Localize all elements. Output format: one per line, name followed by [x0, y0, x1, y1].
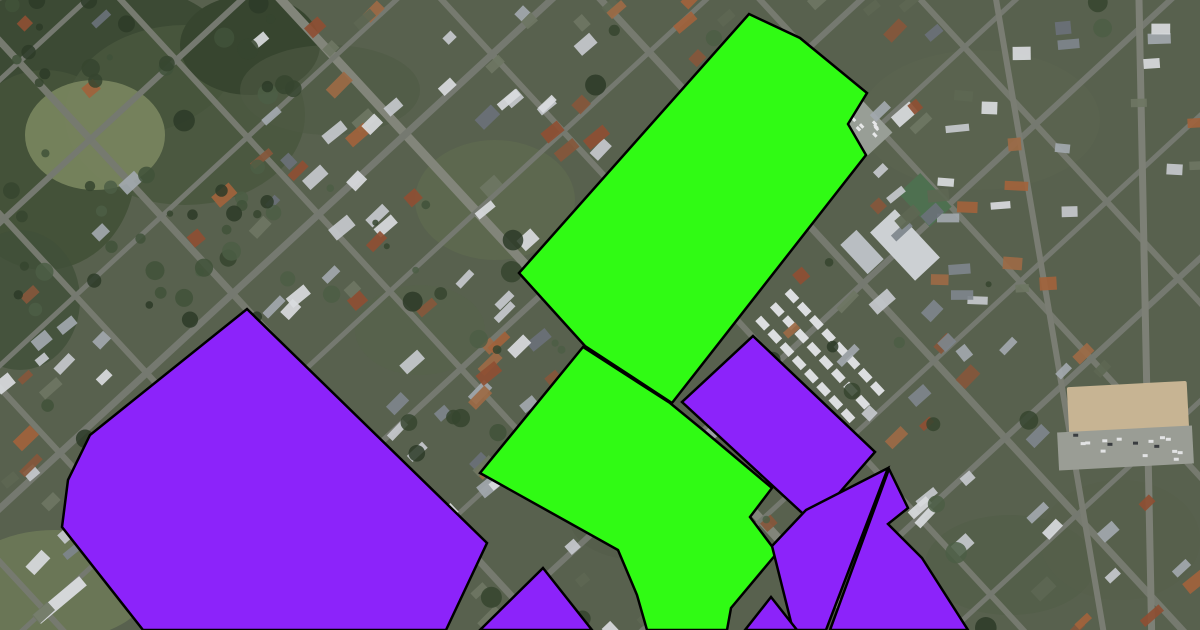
tree [503, 230, 524, 251]
house-roof [927, 188, 949, 202]
car [1102, 439, 1107, 442]
car [1085, 441, 1090, 444]
tree [14, 290, 23, 299]
car [1148, 440, 1153, 443]
house-roof [1003, 256, 1023, 270]
house-roof [1166, 164, 1183, 176]
tree [558, 346, 566, 354]
car [1081, 442, 1086, 445]
car [1166, 438, 1171, 441]
house-roof [1148, 33, 1171, 44]
tree [36, 263, 54, 281]
tree [35, 78, 44, 87]
car [1160, 436, 1165, 439]
house-roof [981, 101, 997, 114]
tree [253, 210, 261, 218]
tree [825, 258, 834, 267]
car [1143, 454, 1148, 457]
car [1174, 458, 1179, 461]
tree [421, 200, 430, 209]
tree [986, 281, 992, 287]
tree [372, 220, 378, 226]
tree [1020, 411, 1039, 430]
tree [926, 417, 940, 431]
tree [446, 410, 461, 425]
tree [706, 30, 722, 46]
tree [195, 259, 213, 277]
tree [182, 312, 198, 328]
house-roof [951, 290, 973, 300]
tree [481, 587, 502, 608]
car [1172, 450, 1177, 453]
tree [609, 25, 620, 36]
tree [146, 261, 165, 280]
tree [928, 496, 945, 513]
house-roof [957, 201, 978, 213]
tree [21, 45, 35, 59]
tree [167, 210, 173, 216]
tree [827, 341, 839, 353]
tree [262, 81, 273, 92]
tree [894, 337, 905, 348]
tree [489, 424, 506, 441]
tree [41, 149, 49, 157]
tree [175, 289, 193, 307]
tree [87, 274, 101, 288]
tree [138, 167, 155, 184]
tree [323, 286, 340, 303]
tree [327, 184, 335, 192]
tree [434, 287, 447, 300]
car [1107, 443, 1112, 446]
tree [155, 287, 167, 299]
tree [493, 345, 502, 354]
tree [844, 383, 861, 400]
house-roof [937, 177, 954, 186]
tree [146, 301, 154, 309]
tree [36, 24, 43, 31]
tree [39, 68, 50, 79]
tree [412, 267, 419, 274]
tree [29, 303, 43, 317]
house-roof [1013, 47, 1031, 61]
tree [107, 54, 113, 60]
tree [552, 340, 559, 347]
house-roof [954, 90, 974, 102]
tree [159, 56, 175, 72]
tree [215, 184, 227, 196]
mall-parking-lot [1057, 425, 1194, 470]
house-roof [1057, 39, 1079, 50]
tree [173, 110, 195, 132]
house-roof [1151, 24, 1170, 35]
tree [12, 55, 22, 65]
house-roof [948, 263, 971, 275]
tree [763, 516, 771, 524]
tree [275, 75, 294, 94]
tree [104, 181, 117, 194]
house-roof [1004, 181, 1028, 191]
house-roof [1189, 161, 1200, 170]
house-roof [931, 274, 949, 285]
tree [222, 242, 241, 261]
tree [118, 15, 135, 32]
tree [280, 271, 295, 286]
tree [82, 59, 100, 77]
tree [226, 206, 242, 222]
car [1154, 445, 1159, 448]
house-roof [1008, 137, 1022, 151]
house-roof [1055, 21, 1072, 35]
car [1117, 438, 1122, 441]
tree [401, 414, 418, 431]
house-roof [1143, 58, 1160, 69]
tree [222, 225, 232, 235]
car [1133, 442, 1138, 445]
house-roof [1131, 99, 1147, 108]
tree [135, 233, 145, 243]
tree [16, 211, 28, 223]
tree [409, 445, 426, 462]
tree [237, 38, 258, 59]
tree [20, 262, 29, 271]
tree [105, 241, 117, 253]
tree [946, 542, 967, 563]
tree [1093, 19, 1112, 38]
tree [96, 206, 107, 217]
car [1178, 451, 1183, 454]
house-roof [1015, 284, 1029, 293]
tree [260, 195, 273, 208]
tree [384, 243, 390, 249]
tree [403, 292, 423, 312]
tree [214, 27, 234, 47]
car [1073, 434, 1078, 437]
tree [85, 181, 95, 191]
car [1101, 450, 1106, 453]
tree [585, 75, 606, 96]
map-viewport[interactable] [0, 0, 1200, 630]
map-canvas [0, 0, 1200, 630]
house-roof [1039, 276, 1057, 290]
house-roof [1062, 206, 1078, 217]
tree [470, 330, 488, 348]
house-roof [1187, 117, 1200, 128]
house-roof [1055, 143, 1071, 153]
tree [41, 399, 54, 412]
tree [266, 14, 275, 23]
tree [187, 209, 198, 220]
tree [250, 160, 265, 175]
tree [3, 182, 20, 199]
